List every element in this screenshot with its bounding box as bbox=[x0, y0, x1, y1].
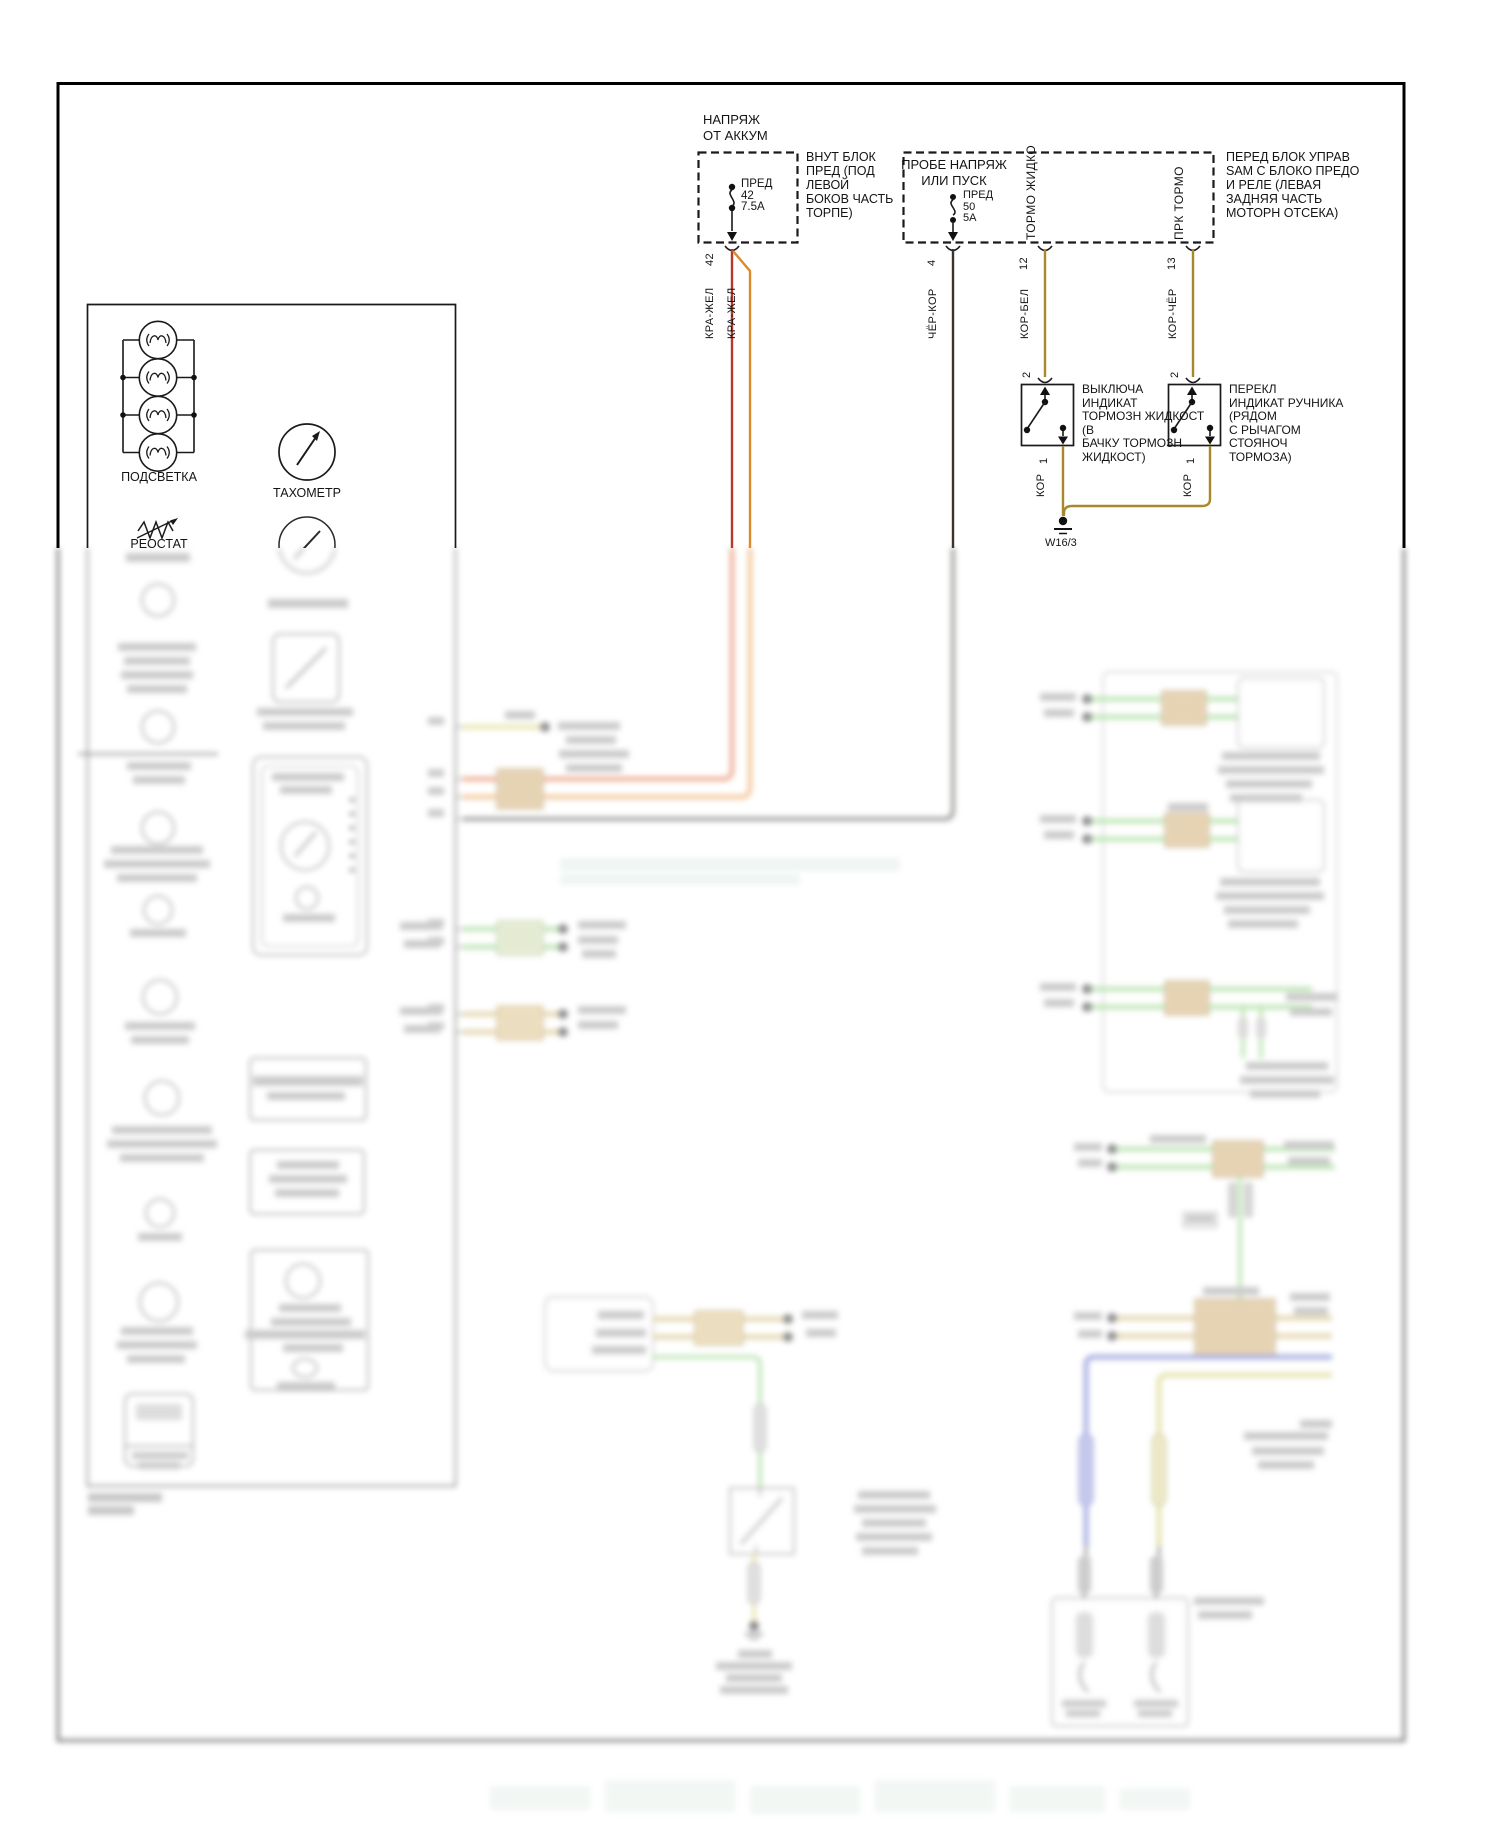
sharp-diagram-region: НАПРЯЖ ОТ АККУМ ПРЕД 42 7.5А ВНУТ БЛОК П… bbox=[0, 0, 1500, 548]
diagram-lines-svg bbox=[0, 0, 1500, 548]
rheostat-icon bbox=[137, 518, 178, 538]
faded-right-group-blobs bbox=[1040, 693, 1338, 1222]
wire-label-kra-zhel-2: КРА-ЖЕЛ bbox=[725, 287, 739, 339]
wire-label-kra-zhel-1: КРА-ЖЕЛ bbox=[703, 287, 717, 339]
brake-fluid-switch-icon bbox=[1022, 385, 1074, 446]
brake-fluid-switch-pin-1: 1 bbox=[1037, 457, 1051, 464]
pin-42: 42 bbox=[703, 253, 717, 266]
faded-bottom-watermark bbox=[490, 1780, 1190, 1814]
park-brake-switch-pin-1: 1 bbox=[1184, 457, 1198, 464]
faded-panel-pins bbox=[428, 717, 463, 1032]
faded-bottom-left-assembly bbox=[545, 1297, 794, 1639]
faded-left-wires bbox=[463, 548, 953, 1040]
sam-note: ПЕРЕД БЛОК УПРАВ SAM С БЛОКО ПРЕДО И РЕЛ… bbox=[1226, 150, 1359, 220]
wire-label-kor-cher: КОР-ЧЁР bbox=[1166, 288, 1180, 339]
ground-label: W16/3 bbox=[1045, 538, 1077, 548]
faded-diagram-region bbox=[0, 548, 1500, 1828]
brake-fluid-switch-label: ВЫКЛЮЧА ИНДИКАТ ТОРМОЗН ЖИДКОСТ (В БАЧКУ… bbox=[1082, 383, 1204, 464]
faded-watermark-mid bbox=[560, 858, 900, 885]
fuse-42-text: ПРЕД 42 7.5А bbox=[741, 179, 772, 214]
faded-bottom-right-assembly bbox=[1052, 1299, 1332, 1726]
park-brake-switch-pin-2: 2 bbox=[1168, 371, 1182, 378]
pin-13: 13 bbox=[1165, 257, 1179, 270]
brake-fluid-switch-pin-2: 2 bbox=[1020, 371, 1034, 378]
rheostat-label: РЕОСТАТ bbox=[117, 537, 201, 548]
backlight-lamps-icon bbox=[120, 321, 197, 471]
speedometer-gauge-icon bbox=[279, 517, 335, 548]
park-brake-switch-label: ПЕРЕКЛ ИНДИКАТ РУЧНИКА (РЯДОМ С РЫЧАГОМ … bbox=[1229, 383, 1343, 464]
faded-cluster-symbols-col1 bbox=[78, 548, 335, 1466]
pin-label-tormo-zhidko: ТОРМО ЖИДКО bbox=[1024, 145, 1038, 240]
fuse-50-text: ПРЕД 50 5А bbox=[963, 190, 993, 225]
faded-panel-caption bbox=[88, 1493, 162, 1515]
faded-cluster-symbols-col2 bbox=[250, 634, 368, 1390]
backlight-label: ПОДСВЕТКА bbox=[117, 470, 201, 484]
sam-title: ПРОБЕ НАПРЯЖ ИЛИ ПУСК bbox=[898, 157, 1010, 188]
faded-cluster-text-blobs bbox=[104, 553, 365, 1469]
battery-feed-title: НАПРЯЖ ОТ АККУМ bbox=[703, 112, 768, 143]
wiring-diagram-page: НАПРЯЖ ОТ АККУМ ПРЕД 42 7.5А ВНУТ БЛОК П… bbox=[0, 0, 1500, 1828]
wire-label-kor-1: КОР bbox=[1034, 474, 1048, 497]
wire-label-kor-2: КОР bbox=[1181, 474, 1195, 497]
wire-label-cher-kor: ЧЁР-КОР bbox=[926, 288, 940, 339]
pin-label-prk-tormo: ПРК ТОРМО bbox=[1172, 166, 1186, 240]
tachometer-label: ТАХОМЕТР bbox=[265, 486, 349, 500]
ground-symbol bbox=[1054, 517, 1072, 534]
faded-left-wire-blobs bbox=[400, 711, 629, 1033]
faded-diagram-svg bbox=[0, 548, 1500, 1828]
pin-12: 12 bbox=[1017, 257, 1031, 270]
fuse-box-42-note: ВНУТ БЛОК ПРЕД (ПОД ЛЕВОЙ БОКОВ ЧАСТЬ ТО… bbox=[806, 150, 893, 220]
pin-4: 4 bbox=[925, 259, 939, 266]
tachometer-gauge-icon bbox=[279, 424, 335, 480]
wire-label-kor-bel: КОР-БЕЛ bbox=[1018, 289, 1032, 339]
